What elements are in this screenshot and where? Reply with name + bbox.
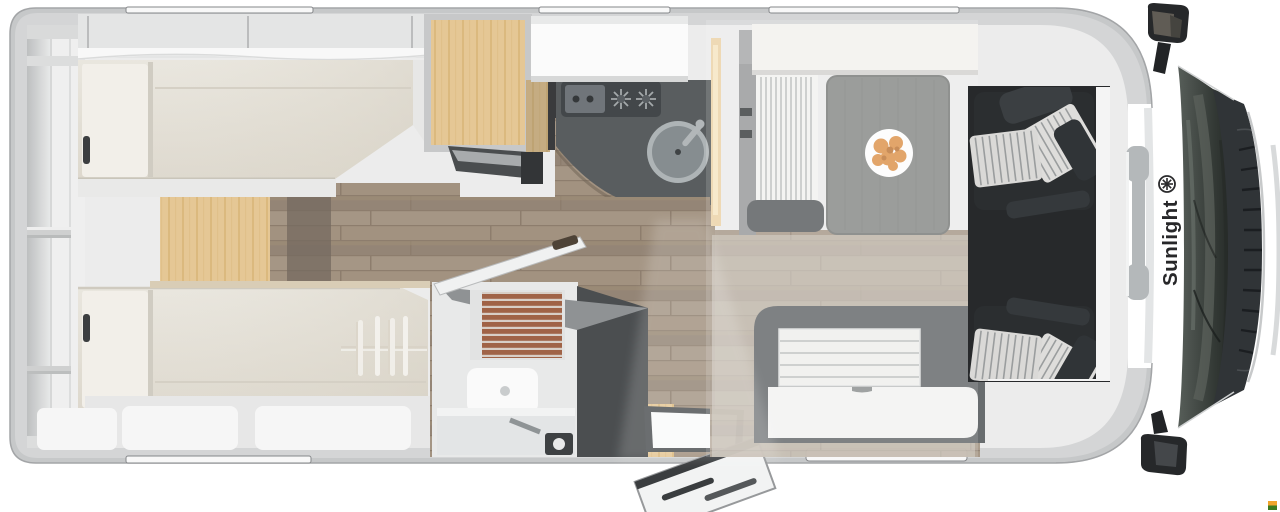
svg-text:Sunlight: Sunlight bbox=[1159, 200, 1182, 286]
